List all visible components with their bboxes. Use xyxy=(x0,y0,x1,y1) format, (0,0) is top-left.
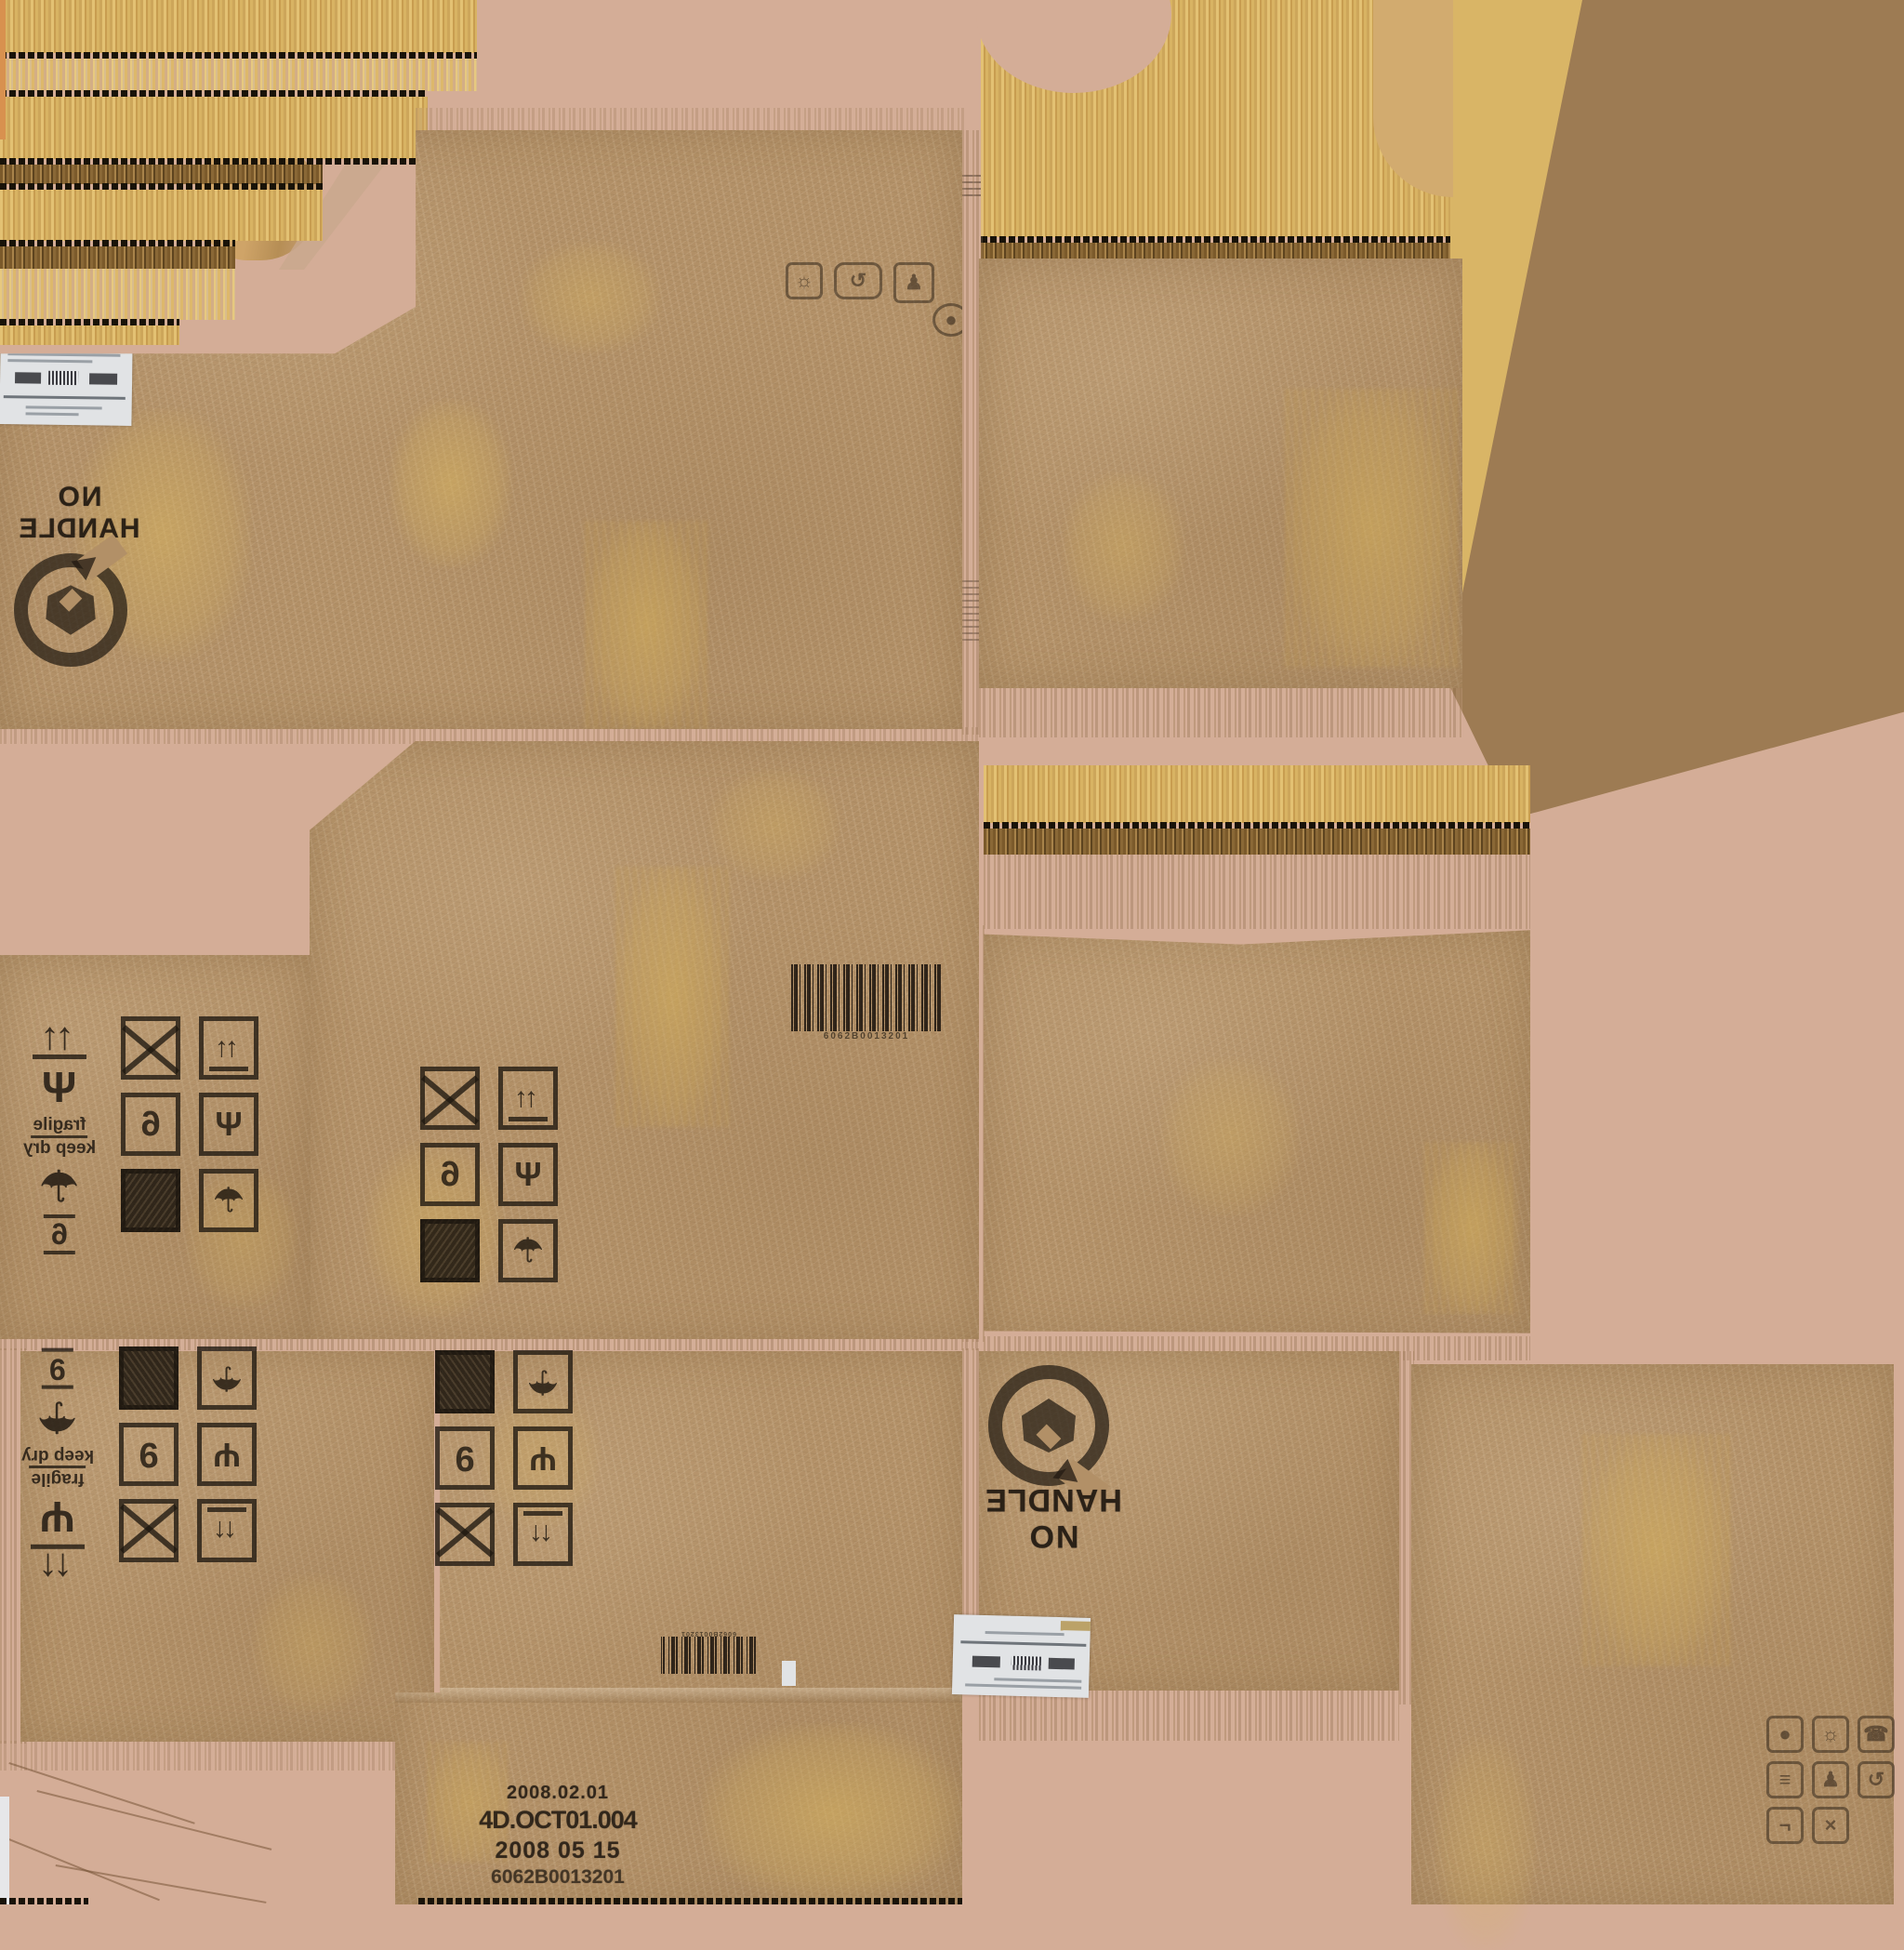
label-text-line xyxy=(994,1678,1081,1682)
label-barcode xyxy=(1011,1656,1041,1671)
corrugation-band xyxy=(0,325,179,345)
fragile-text-icon: fragilekeep dry xyxy=(21,1445,94,1489)
label-smudge xyxy=(89,373,117,384)
production-date-stamp: 2008.02.01 4D.OCT01.004 2008 05 15 6062B… xyxy=(446,1782,669,1890)
scratch-line xyxy=(8,1762,194,1824)
flute-teeth-line xyxy=(984,822,1530,829)
barcode-caption: 6062B0013201 xyxy=(791,1031,942,1041)
texture-stretch-streaks xyxy=(0,1741,434,1771)
panel-top-back xyxy=(979,259,1462,688)
handling-symbols-grid: 6↑↑Ψ☂ xyxy=(420,1067,558,1282)
texture-stretch-streaks xyxy=(416,108,964,130)
loop-icon: ↺ xyxy=(1858,1761,1895,1798)
umbrella-box-icon: ☂ xyxy=(199,1169,258,1232)
wine-glass-box-icon: Ψ xyxy=(199,1093,258,1156)
crossed-box-icon xyxy=(420,1067,480,1130)
date-line: 2008 05 15 xyxy=(446,1837,669,1865)
up-arrows-box-icon: ↑↑ xyxy=(199,1016,258,1080)
flute-teeth-line xyxy=(0,183,323,190)
hand-icon: ● xyxy=(1766,1716,1804,1753)
no-handle-line2: HANDLE xyxy=(0,513,158,545)
part-number-line: 4D.OCT01.004 xyxy=(446,1805,669,1837)
no-handle-stamp-text: NO HANDLE xyxy=(960,1481,1146,1554)
up-arrows-icon: ↑↑ xyxy=(33,1018,86,1059)
label-text-line xyxy=(985,1631,1064,1636)
wine-glass-box-icon: Ψ xyxy=(197,1423,257,1486)
umbrella-box-icon: ☂ xyxy=(197,1346,257,1410)
fold-crease xyxy=(395,1688,962,1703)
label-rule xyxy=(960,1640,1086,1647)
flute-teeth-line xyxy=(0,1898,88,1904)
no-handle-line1: NO xyxy=(960,1518,1146,1554)
yellow-stain-corrugated xyxy=(1286,389,1458,668)
umbrella-box-icon: ☂ xyxy=(498,1219,558,1282)
yellow-stain-corrugated xyxy=(1425,1142,1518,1314)
date-line: 2008.02.01 xyxy=(446,1782,669,1805)
flute-teeth-line xyxy=(418,1898,962,1904)
flute-teeth-line xyxy=(0,52,477,59)
digit-box-icon: 9 xyxy=(119,1423,178,1486)
corrugation-band xyxy=(0,59,477,91)
label-text-line xyxy=(7,352,120,357)
corrugation-dark-band xyxy=(0,165,323,184)
yellow-stain xyxy=(253,1574,374,1714)
figure-icon: ♟ xyxy=(1812,1761,1849,1798)
solid-box-icon xyxy=(420,1219,480,1282)
label-rule xyxy=(4,395,126,400)
yellow-stain xyxy=(702,1723,962,1904)
lines-icon: ≡ xyxy=(1766,1761,1804,1798)
wine-glass-box-icon: Ψ xyxy=(498,1143,558,1206)
digit-box-icon: 6 xyxy=(420,1143,480,1206)
yellow-stain xyxy=(390,400,511,567)
circular-box-stamp xyxy=(14,553,127,667)
faded-icon-row: ☼↺♟● xyxy=(786,262,972,340)
umbrella-icon: ☂ xyxy=(40,1165,78,1208)
yellow-stain xyxy=(1435,1736,1537,1950)
phone-icon: ☎ xyxy=(1858,1716,1895,1753)
no-handle-line1: NO xyxy=(0,482,158,513)
yellow-stain-corrugated xyxy=(616,867,728,1127)
yellow-stain xyxy=(1063,472,1183,621)
panel-middle-back xyxy=(984,928,1530,1337)
barcode: 6062B0013201 xyxy=(661,1630,756,1674)
bracket-icon: ¬ xyxy=(1766,1807,1804,1844)
yellow-stain xyxy=(1160,1058,1300,1216)
label-text-line xyxy=(26,412,79,416)
flute-teeth-line xyxy=(0,90,428,97)
solid-box-icon xyxy=(435,1350,495,1413)
label-smudge xyxy=(1049,1658,1075,1670)
open-box-icon xyxy=(46,585,95,634)
barcode: 6062B0013201 xyxy=(791,964,942,1041)
orange-sliver xyxy=(0,0,6,139)
no-handle-stamp-text: NO HANDLE xyxy=(0,482,158,545)
label-text-line xyxy=(965,1683,1081,1689)
solid-box-icon xyxy=(119,1346,178,1410)
faded-icon-grid: ●☼☎≡♟↺¬× xyxy=(1766,1716,1895,1844)
starburst-icon: ☼ xyxy=(1812,1716,1849,1753)
barcode-bars xyxy=(791,964,942,1031)
yellow-stain xyxy=(521,242,660,353)
no-handle-line2: HANDLE xyxy=(960,1481,1146,1518)
panel-middle-front: 6062B0013201 xyxy=(310,741,979,1339)
starburst-icon: ☼ xyxy=(786,262,823,299)
fragile-text-icon: fragilekeep dry xyxy=(23,1115,96,1159)
label-barcode xyxy=(48,371,78,385)
label-smudge xyxy=(972,1656,1000,1668)
up-arrows-box-icon: ↑↑ xyxy=(197,1499,257,1562)
open-box-icon xyxy=(1022,1399,1076,1453)
texture-stretch-streaks xyxy=(979,683,1462,737)
yellow-stain-corrugated xyxy=(1583,1434,1732,1666)
corrugation-band xyxy=(984,765,1530,823)
solid-box-icon xyxy=(121,1169,180,1232)
label-scrap xyxy=(782,1661,796,1686)
cross-icon: × xyxy=(1812,1807,1849,1844)
loop-icon: ↺ xyxy=(834,262,882,299)
handling-symbols-grid: 9☂fragilekeep dryΨ↑↑9☂Ψ↑↑ xyxy=(15,1346,257,1585)
up-arrows-icon: ↑↑ xyxy=(31,1545,85,1585)
flute-teeth-line xyxy=(0,319,179,325)
circular-box-stamp xyxy=(988,1365,1109,1486)
label-text-line xyxy=(7,359,92,363)
six-lines-icon: 9 xyxy=(42,1348,73,1389)
shipping-label xyxy=(952,1614,1091,1698)
scratch-line xyxy=(37,1790,272,1851)
yellow-stain-corrugated xyxy=(586,521,707,729)
umbrella-box-icon: ☂ xyxy=(513,1350,573,1413)
wine-glass-icon: Ψ xyxy=(40,1495,74,1538)
barcode-caption: 6062B0013201 xyxy=(661,1630,756,1637)
crossed-box-icon xyxy=(121,1016,180,1080)
flute-teeth-line xyxy=(0,158,428,165)
serial-line: 6062B0013201 xyxy=(446,1865,669,1890)
label-text-line xyxy=(26,405,102,409)
texture-stretch-streaks xyxy=(984,855,1530,929)
wine-glass-icon: Ψ xyxy=(42,1066,76,1108)
digit-box-icon: 6 xyxy=(121,1093,180,1156)
panel-bottom-back: NO HANDLE xyxy=(979,1351,1399,1691)
corrugation-band xyxy=(0,0,477,53)
handling-symbols-grid: ↑↑Ψfragilekeep dry☂66↑↑Ψ☂ xyxy=(17,1016,258,1254)
flute-teeth-line xyxy=(981,236,1450,243)
corrugation-band xyxy=(0,190,323,241)
label-smudge xyxy=(15,372,41,383)
yellow-stain xyxy=(709,769,840,881)
wine-glass-box-icon: Ψ xyxy=(513,1426,573,1490)
white-sliver xyxy=(0,1797,9,1904)
shipping-label xyxy=(0,344,133,426)
corrugation-dark-band xyxy=(984,829,1530,855)
handling-symbols-grid: 9☂Ψ↑↑ xyxy=(435,1350,573,1566)
up-arrows-box-icon: ↑↑ xyxy=(498,1067,558,1130)
corrugation-dark-band xyxy=(0,246,235,269)
corrugation-band xyxy=(0,269,235,320)
figure-icon: ♟ xyxy=(893,262,934,303)
panel-bottom-right: ●☼☎≡♟↺¬× xyxy=(1411,1364,1894,1904)
six-lines-icon: 6 xyxy=(44,1214,75,1255)
crossed-box-icon xyxy=(119,1499,178,1562)
label-tab xyxy=(1061,1621,1091,1631)
corrugation-band xyxy=(0,97,428,159)
barcode-bars xyxy=(661,1637,756,1674)
digit-box-icon: 9 xyxy=(435,1426,495,1490)
flute-teeth-line xyxy=(0,240,235,246)
up-arrows-box-icon: ↑↑ xyxy=(513,1503,573,1566)
umbrella-icon: ☂ xyxy=(38,1396,76,1439)
crossed-box-icon xyxy=(435,1503,495,1566)
texture-atlas-canvas: { "title": "cardboard box diffuse textur… xyxy=(0,0,1904,1904)
